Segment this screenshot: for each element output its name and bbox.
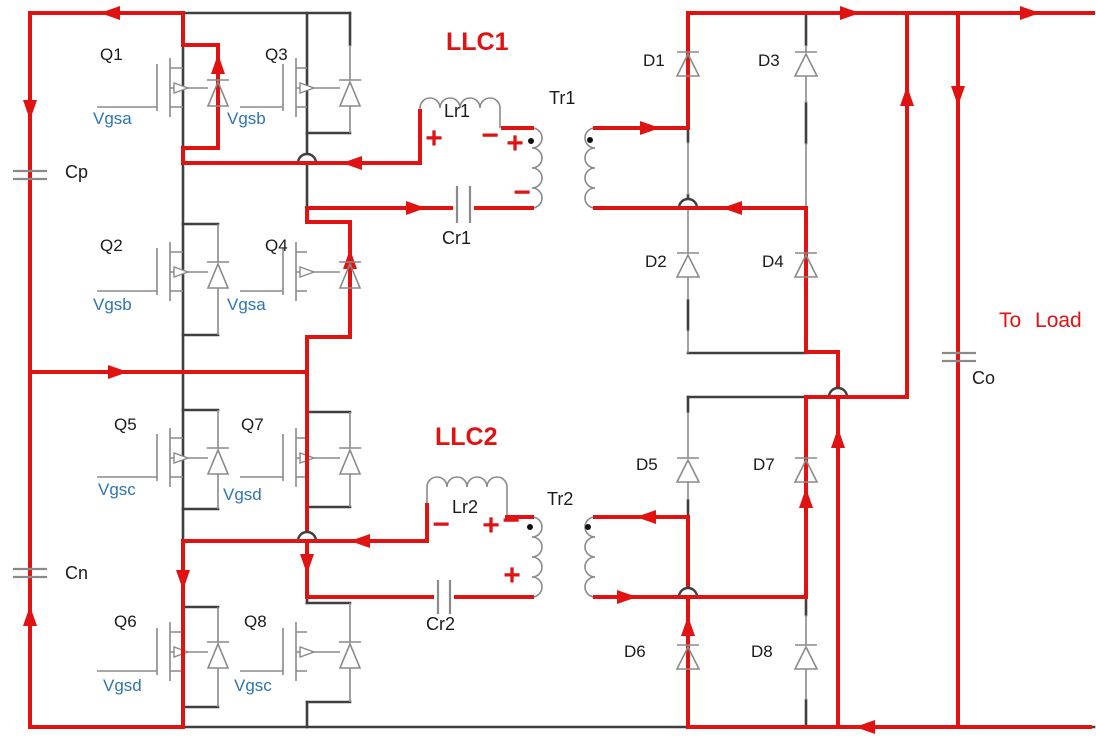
rectifier-wires: [688, 45, 806, 700]
current-arrow-up: [23, 606, 37, 626]
body-diode-q1: [207, 80, 229, 106]
diode-d1: [677, 52, 699, 76]
transformer-tr2: [532, 517, 595, 597]
polarity-minus-tr1: −: [513, 178, 531, 208]
label-q8: Q8: [244, 612, 267, 632]
label-q2: Q2: [100, 236, 123, 256]
label-q3: Q3: [265, 45, 288, 65]
current-arrow-left: [100, 6, 120, 20]
label-d2: D2: [645, 252, 667, 272]
label-d3: D3: [758, 51, 780, 71]
label-llc2: LLC2: [435, 423, 498, 452]
label-cn: Cn: [65, 563, 88, 584]
current-arrow-left: [636, 510, 656, 524]
body-diode-q8: [339, 642, 361, 668]
gate-signal-q3: Vgsb: [227, 109, 266, 129]
mosfet-q4: [240, 242, 340, 301]
gate-signal-q2: Vgsb: [93, 295, 132, 315]
phase-dot-tr2-primary: [527, 524, 533, 530]
rectifier-diodes: [677, 52, 817, 669]
gate-signal-q5: Vgsc: [98, 480, 136, 500]
current-arrow-up: [799, 488, 813, 508]
polarity-minus-tr2: −: [502, 506, 520, 536]
current-arrow-right: [1020, 6, 1040, 20]
phase-dot-tr1-primary: [528, 138, 534, 144]
diode-d7: [795, 458, 817, 482]
body-diode-q5: [207, 448, 229, 474]
polarity-plus-lr1: +: [425, 124, 443, 154]
current-arrow-right: [617, 590, 637, 604]
label-co: Co: [972, 368, 995, 389]
label-tr1: Tr1: [549, 88, 575, 109]
label-d7: D7: [753, 455, 775, 475]
capacitor-cr1: [457, 186, 470, 223]
phase-dot-tr1-secondary: [587, 137, 593, 143]
current-arrow-left: [855, 720, 875, 734]
phase-dots: [527, 137, 593, 530]
circuit-canvas: [0, 0, 1096, 744]
label-d8: D8: [751, 642, 773, 662]
label-d5: D5: [636, 455, 658, 475]
label-q7: Q7: [241, 415, 264, 435]
current-arrow-up: [211, 54, 225, 74]
current-arrow-down: [176, 570, 190, 590]
label-lr2: Lr2: [452, 497, 478, 518]
current-arrow-right: [840, 6, 860, 20]
gate-signal-q1: Vgsa: [93, 109, 132, 129]
label-to-load: To Load: [999, 309, 1082, 333]
diode-d4: [795, 253, 817, 277]
phase-dot-tr2-secondary: [585, 524, 591, 530]
gate-signal-q6: Vgsd: [103, 676, 142, 696]
label-cr2: Cr2: [426, 614, 455, 635]
current-arrow-down: [300, 554, 314, 574]
current-arrow-down: [23, 100, 37, 120]
polarity-minus-lr2: −: [432, 510, 450, 540]
gate-signal-q7: Vgsd: [223, 485, 262, 505]
wire-hops: [298, 154, 847, 597]
label-llc1: LLC1: [446, 28, 509, 57]
label-d6: D6: [624, 642, 646, 662]
body-diode-q7: [339, 448, 361, 474]
current-arrow-left: [342, 156, 362, 170]
label-cp: Cp: [65, 162, 88, 183]
label-lr1: Lr1: [444, 101, 470, 122]
body-diode-q4: [339, 262, 361, 288]
label-d1: D1: [643, 51, 665, 71]
gate-signal-q8: Vgsc: [234, 676, 272, 696]
current-arrow-up: [681, 616, 695, 636]
current-arrow-right: [640, 121, 660, 135]
current-arrow-left: [722, 201, 742, 215]
gate-signal-q4: Vgsa: [227, 295, 266, 315]
label-tr2: Tr2: [547, 489, 573, 510]
polarity-minus-lr1: −: [481, 121, 499, 151]
diode-d5: [677, 458, 699, 482]
current-arrow-right: [406, 201, 426, 215]
label-q5: Q5: [114, 415, 137, 435]
body-diode-q2: [207, 262, 229, 288]
body-diode-q6: [207, 642, 229, 668]
label-d4: D4: [762, 252, 784, 272]
current-path-over: [183, 163, 907, 597]
current-arrow-left: [350, 534, 370, 548]
current-arrow-up: [831, 428, 845, 448]
polarity-plus-tr2: +: [503, 561, 521, 591]
circuit-diagram: Q1 Q3 Q2 Q4 Q5 Q7 Q6 Q8 Vgsa Vgsb Vgsb V…: [0, 0, 1096, 744]
diode-d3: [795, 52, 817, 76]
body-diode-q3: [339, 80, 361, 106]
transformer-tr1: [532, 128, 595, 208]
current-arrow-up: [900, 86, 914, 106]
label-q6: Q6: [114, 612, 137, 632]
diode-d6: [677, 645, 699, 669]
current-arrow-right: [108, 365, 128, 379]
diode-d8: [795, 645, 817, 669]
polarity-plus-tr1: +: [506, 129, 524, 159]
polarity-plus-lr2: +: [482, 511, 500, 541]
current-path-under: [30, 13, 1093, 727]
current-arrow-down: [951, 86, 965, 106]
label-q1: Q1: [100, 45, 123, 65]
diode-d2: [677, 253, 699, 277]
capacitor-cr2: [438, 580, 450, 614]
label-cr1: Cr1: [442, 228, 471, 249]
label-q4: Q4: [265, 236, 288, 256]
